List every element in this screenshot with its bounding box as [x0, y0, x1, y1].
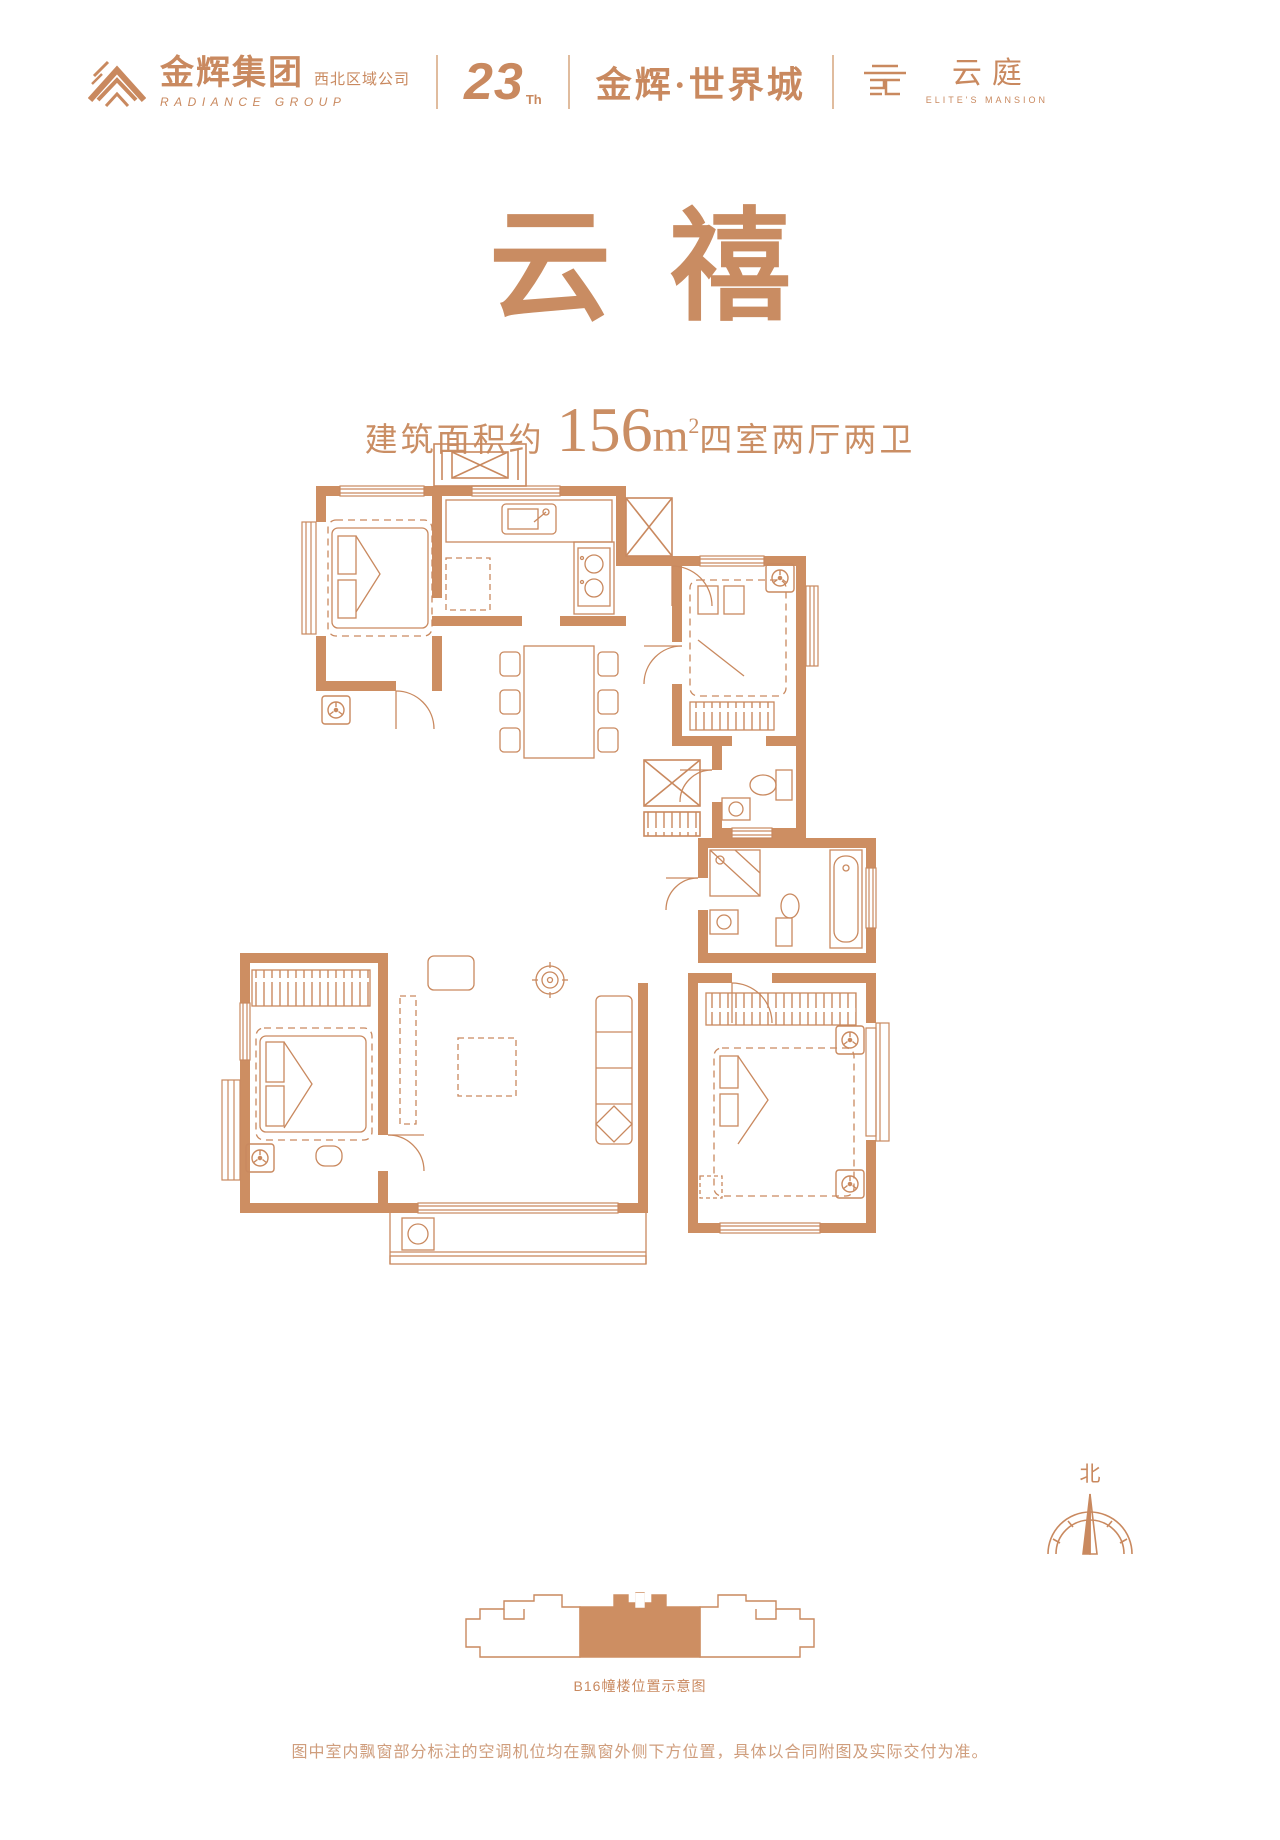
compass: 北 — [1035, 1458, 1145, 1558]
radiance-group-logo: 金辉集团 西北区域公司 RADIANCE GROUP — [88, 54, 410, 110]
area-exponent: 2 — [688, 413, 699, 439]
project-name: 金辉·世界城 — [596, 56, 806, 108]
building-locator — [450, 1585, 830, 1671]
sub-brand-logo: 云庭 ELITE'S MANSION — [860, 59, 1048, 105]
radiance-logo-icon — [88, 54, 146, 110]
anniversary-logo: 23 Th — [464, 56, 542, 108]
anniversary-number: 23 — [464, 56, 524, 108]
header-divider — [568, 55, 570, 109]
group-name-cn: 金辉集团 — [160, 56, 304, 90]
header-divider — [436, 55, 438, 109]
group-name-en: RADIANCE GROUP — [160, 96, 410, 108]
floor-plan — [220, 440, 890, 1270]
poster-page: 金辉集团 西北区域公司 RADIANCE GROUP 23 Th 金辉·世界城 — [0, 0, 1280, 1840]
building-locator-icon — [450, 1585, 830, 1671]
footer-disclaimer: 图中室内飘窗部分标注的空调机位均在飘窗外侧下方位置，具体以合同附图及实际交付为准… — [0, 1738, 1280, 1762]
compass-north-label: 北 — [1035, 1458, 1145, 1488]
sub-brand-cn: 云庭 — [942, 59, 1032, 89]
unit-title-char2: 禧 — [669, 188, 791, 347]
radiance-logo-text: 金辉集团 西北区域公司 RADIANCE GROUP — [160, 56, 410, 108]
doors — [388, 566, 772, 1171]
sub-brand-en: ELITE'S MANSION — [926, 96, 1048, 105]
header-divider — [832, 55, 834, 109]
anniversary-suffix: Th — [526, 93, 542, 106]
floor-plan-svg — [220, 440, 890, 1270]
compass-icon — [1035, 1488, 1145, 1560]
locator-caption: B16幢楼位置示意图 — [0, 1676, 1280, 1696]
furniture — [246, 500, 864, 1264]
walls — [240, 486, 876, 1233]
unit-title-char1: 云 — [489, 188, 611, 347]
unit-title: 云 禧 — [0, 188, 1280, 347]
pavilion-gate-icon — [860, 62, 910, 102]
group-region: 西北区域公司 — [314, 72, 410, 87]
shafts — [434, 444, 700, 836]
header: 金辉集团 西北区域公司 RADIANCE GROUP 23 Th 金辉·世界城 — [88, 42, 1188, 122]
windows — [222, 486, 889, 1233]
